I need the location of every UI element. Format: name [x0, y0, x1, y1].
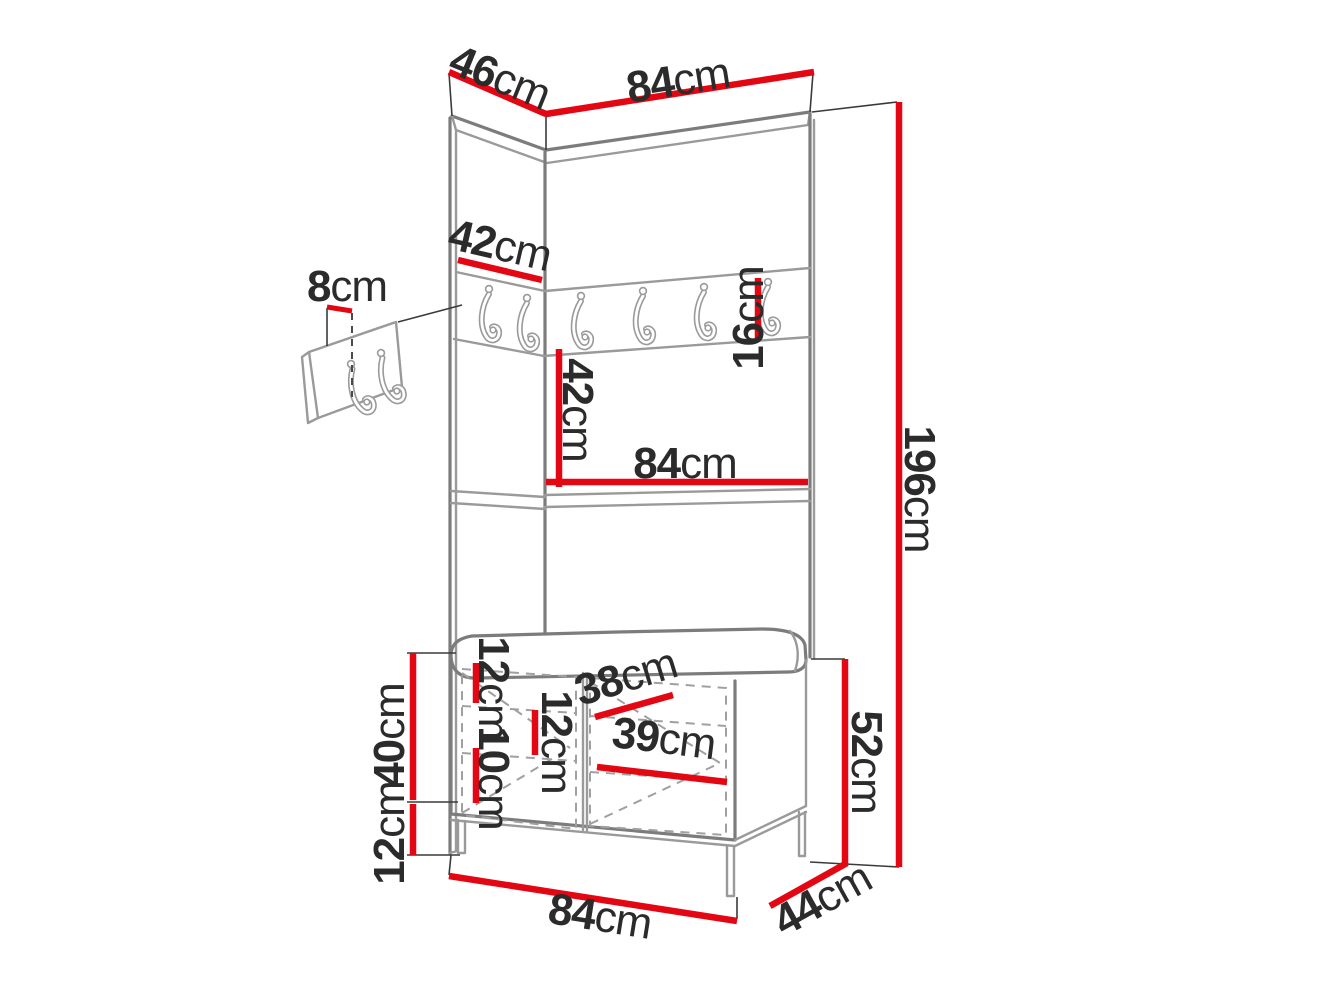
angled-hook-strip-edges [454, 272, 545, 356]
front-right-leg [727, 846, 734, 896]
wardrobe-top-outer-edge [452, 112, 810, 150]
dim-label-bench-upper-depth: 38cm [569, 639, 682, 716]
dim-label-bench-leg-height: 12cm [365, 781, 414, 885]
dim-label-total-height: 196cm [895, 425, 944, 552]
dim-label-bench-depth: 44cm [765, 853, 879, 946]
furniture-dimension-diagram: 46cm 84cm 42cm 8cm 16cm 42cm 84cm 196cm … [0, 0, 1320, 990]
bench-cushion-curve [790, 631, 798, 671]
dim-label-bench-lower-gap: 10cm [469, 726, 518, 830]
dim-label-top-side-depth: 46cm [443, 35, 557, 119]
wardrobe-top-inner-edge [456, 125, 808, 163]
front-left-leg [458, 820, 465, 853]
dim-label-top-front-width: 84cm [623, 48, 733, 113]
coat-hook-icon [636, 288, 653, 343]
coat-hook-icon [697, 284, 714, 339]
cabinet-right-side [735, 660, 806, 840]
dim-label-bench-width: 84cm [545, 884, 655, 949]
front-shelf-edges [545, 489, 810, 507]
coat-hook-icon [482, 286, 499, 341]
dim-label-hook-panel-offset: 8cm [307, 262, 387, 311]
dim-label-bench-inner-width: 39cm [609, 708, 718, 769]
back-right-leg [799, 812, 805, 856]
dim-label-left-panel-width: 42cm [444, 210, 556, 281]
dim-label-shelf-width: 84cm [633, 439, 737, 488]
dim-label-bench-total-height: 52cm [842, 710, 891, 814]
base-frame-rail-side [735, 812, 806, 846]
dim-label-bench-top-gap: 12cm [469, 636, 518, 740]
dim-label-bench-body-height: 40cm [365, 683, 414, 787]
dim-label-hook-rail-height: 16cm [724, 266, 773, 370]
diagram-stage: 46cm 84cm 42cm 8cm 16cm 42cm 84cm 196cm … [0, 0, 1320, 990]
dim-label-hooks-to-shelf: 42cm [553, 358, 602, 462]
coat-hook-icon [574, 293, 591, 348]
dim-label-bench-mid-gap: 12cm [532, 690, 581, 794]
coat-hook-icon [520, 295, 537, 350]
inset-pointer-line [398, 305, 462, 322]
hook-panel-inset [302, 305, 462, 423]
angled-shelf-edges [451, 491, 545, 509]
